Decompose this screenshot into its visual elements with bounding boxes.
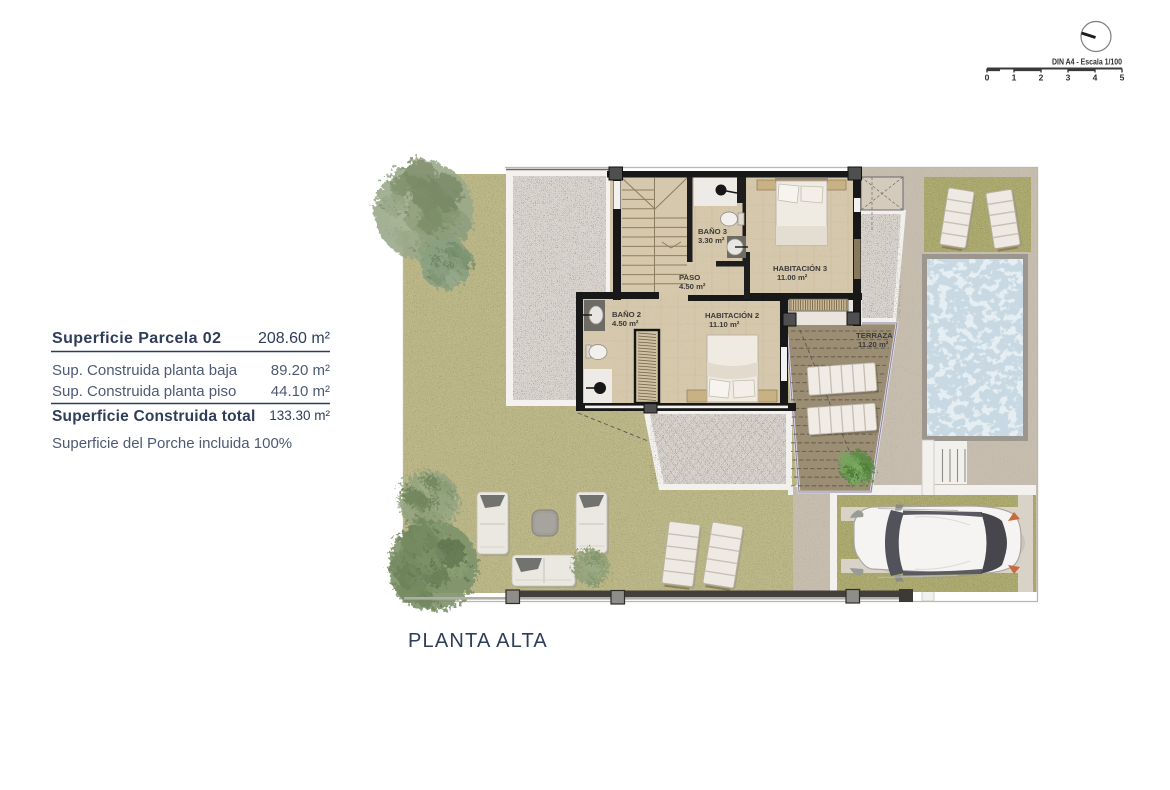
svg-text:BAÑO 3: BAÑO 3	[698, 227, 727, 236]
svg-text:Sup. Construida planta piso: Sup. Construida planta piso	[52, 383, 236, 400]
svg-text:208.60 m²: 208.60 m²	[258, 330, 331, 347]
svg-text:11.20 m²: 11.20 m²	[858, 340, 889, 349]
svg-text:89.20 m²: 89.20 m²	[271, 362, 330, 379]
svg-text:11.10 m²: 11.10 m²	[709, 320, 740, 329]
svg-text:Superficie del Porche incluida: Superficie del Porche incluida 100%	[52, 435, 292, 452]
svg-text:4.50 m²: 4.50 m²	[612, 319, 639, 328]
svg-text:HABITACIÓN 3: HABITACIÓN 3	[773, 264, 827, 273]
svg-text:4.50 m²: 4.50 m²	[679, 282, 706, 291]
svg-text:3.30 m²: 3.30 m²	[698, 236, 725, 245]
svg-text:11.00 m²: 11.00 m²	[777, 273, 808, 282]
svg-text:BAÑO 2: BAÑO 2	[612, 310, 641, 319]
svg-text:0: 0	[985, 73, 990, 83]
svg-text:Sup. Construida planta baja: Sup. Construida planta baja	[52, 362, 238, 379]
svg-text:44.10 m²: 44.10 m²	[271, 383, 330, 400]
svg-text:HABITACIÓN 2: HABITACIÓN 2	[705, 311, 759, 320]
svg-text:PASO: PASO	[679, 273, 700, 282]
svg-text:3: 3	[1066, 73, 1071, 83]
svg-text:1: 1	[1012, 73, 1017, 83]
svg-text:133.30 m²: 133.30 m²	[269, 408, 330, 423]
svg-text:Superficie Construida total: Superficie Construida total	[52, 408, 255, 425]
svg-text:PLANTA ALTA: PLANTA ALTA	[408, 630, 548, 652]
svg-text:TERRAZA: TERRAZA	[856, 331, 893, 340]
svg-text:DIN A4 - Escala 1/100: DIN A4 - Escala 1/100	[1052, 57, 1122, 67]
svg-text:4: 4	[1093, 73, 1098, 83]
svg-text:2: 2	[1039, 73, 1044, 83]
svg-text:5: 5	[1120, 73, 1125, 83]
svg-text:Superficie Parcela 02: Superficie Parcela 02	[52, 330, 221, 347]
